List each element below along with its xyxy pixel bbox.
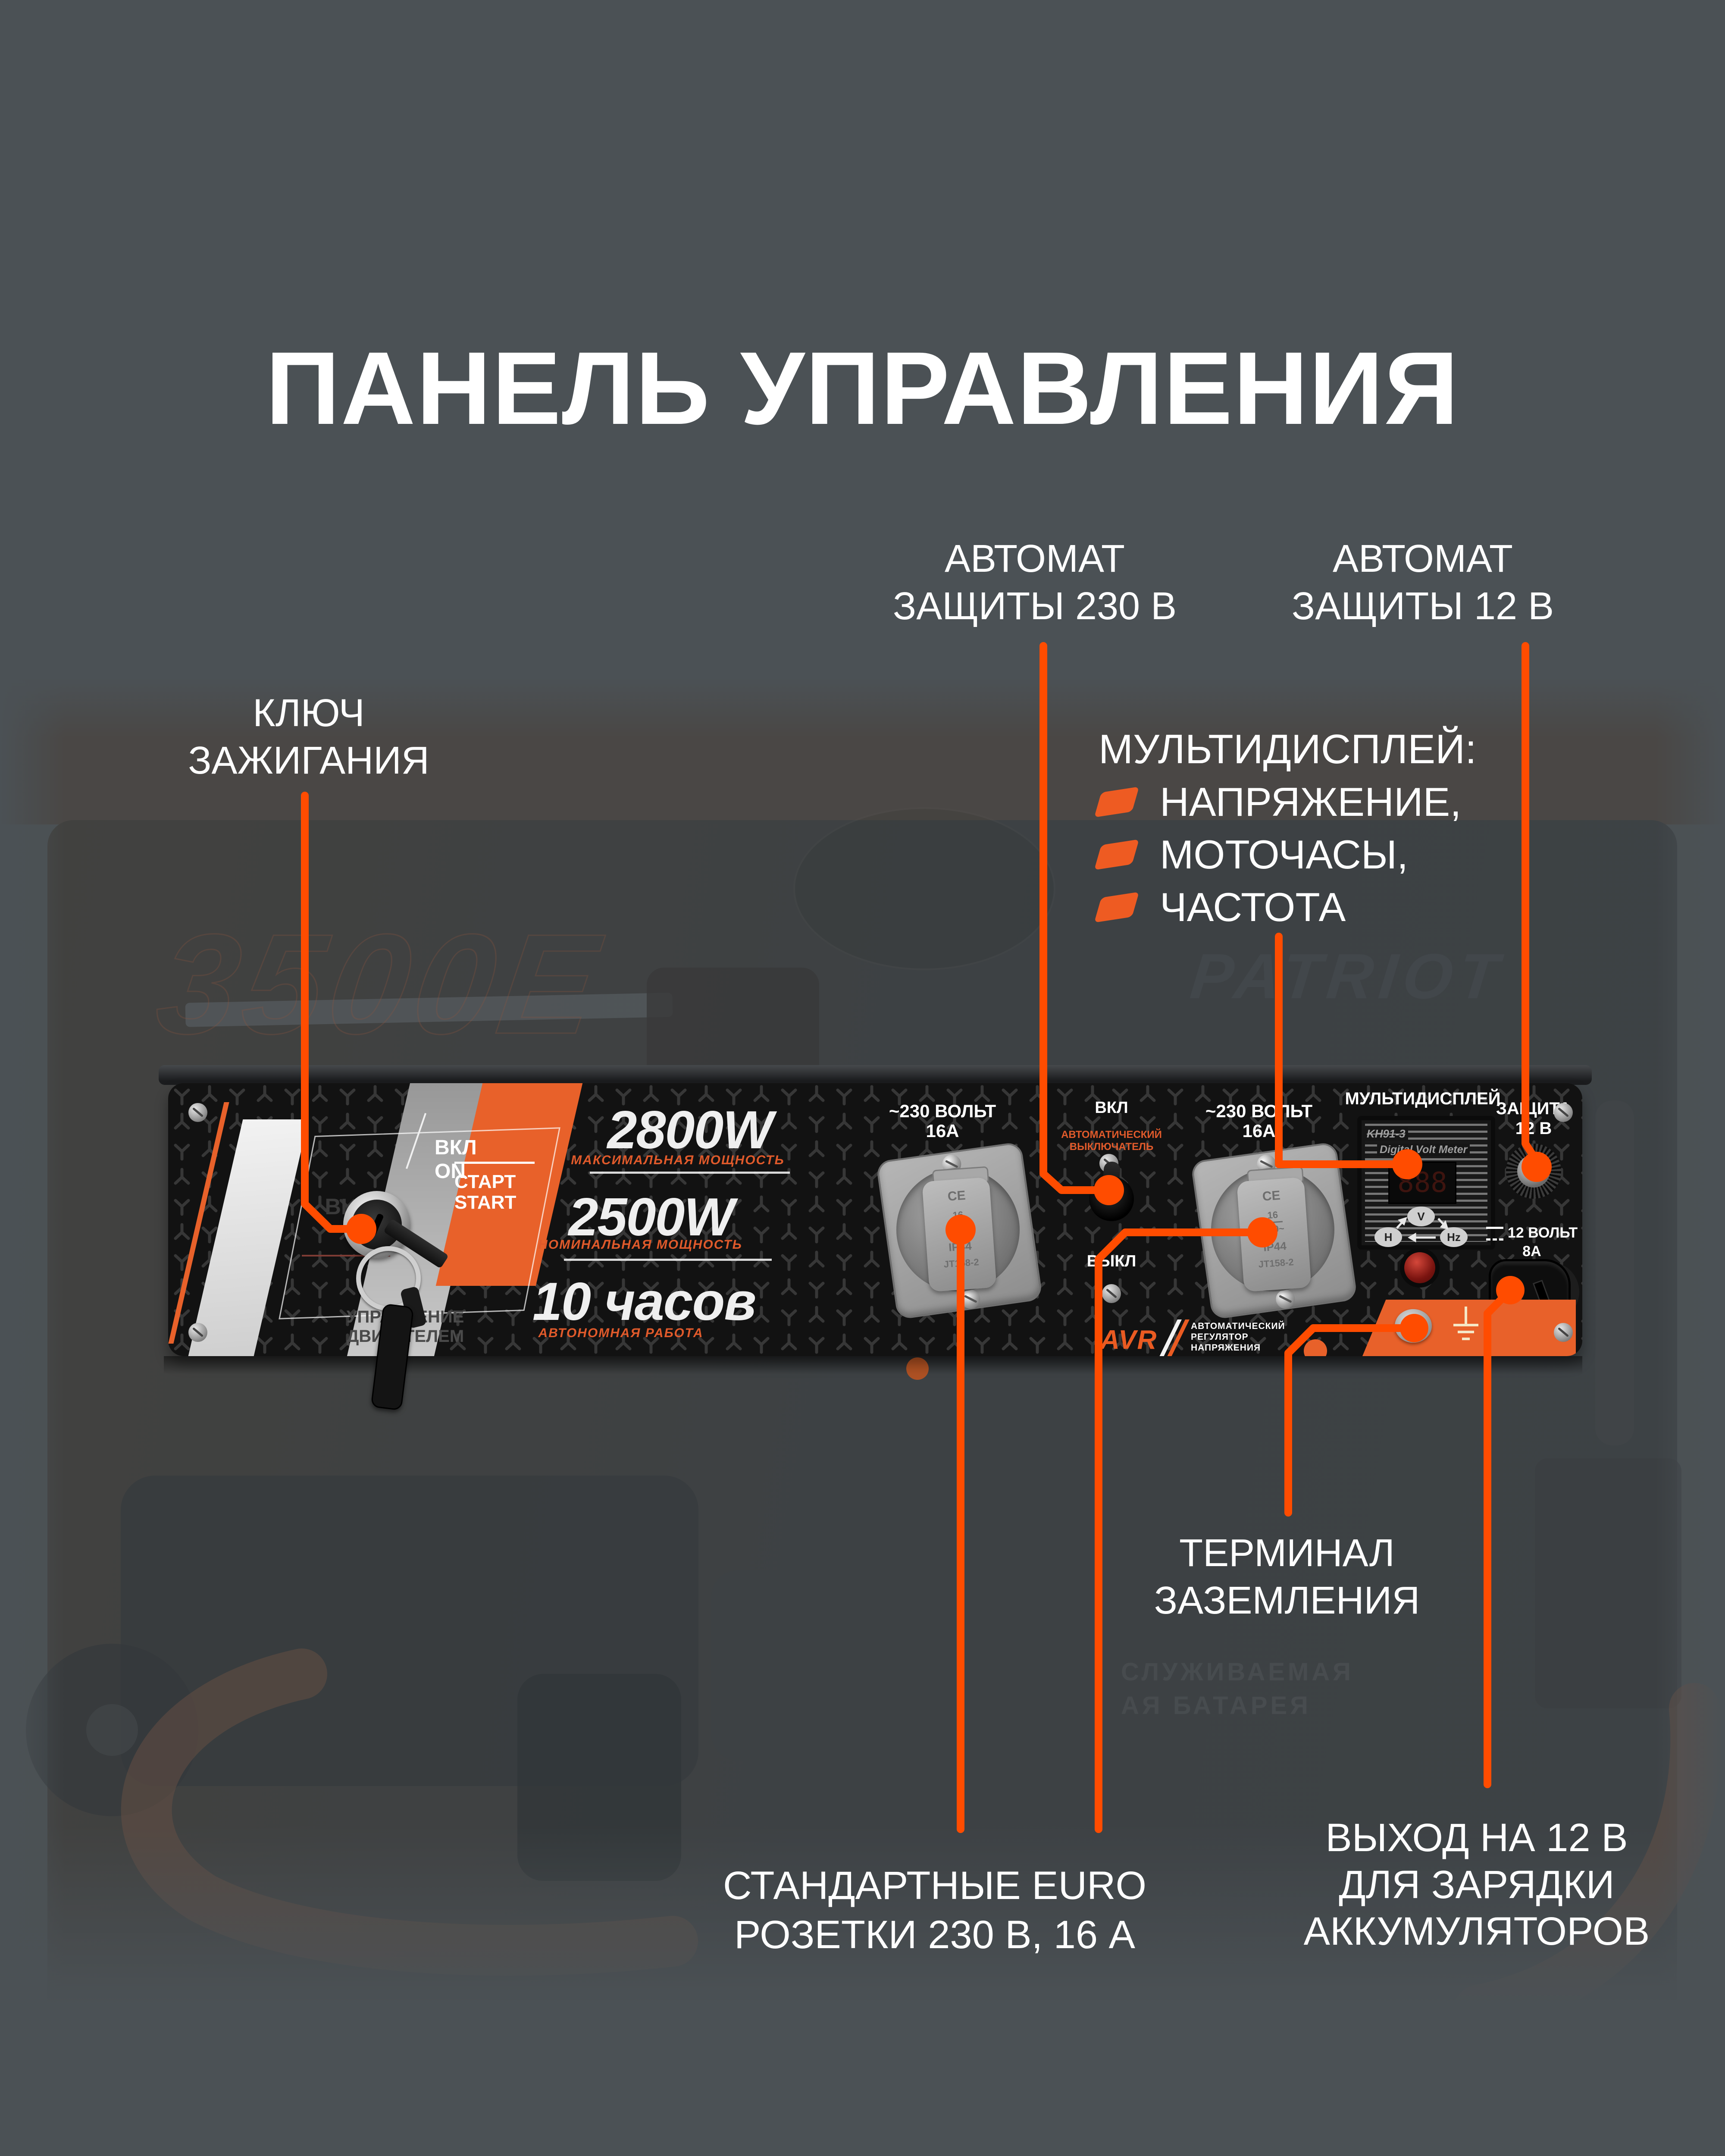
callout-breaker-12v: АВТОМАТ ЗАЩИТЫ 12 В (1143, 536, 1703, 630)
panel-bezel (159, 1065, 1592, 1085)
switch-off-label: ВЫКЛ (1047, 1252, 1176, 1271)
screw-icon (188, 1323, 207, 1342)
screw-icon (1102, 1284, 1121, 1303)
max-power-label: МАКСИМАЛЬНАЯ МОЩНОСТЬ (548, 1153, 807, 1168)
runtime-label: АВТОНОМНАЯ РАБОТА (492, 1326, 750, 1341)
socket-cover-flap: CE 16 250~ IP44 JT158-2 (922, 1177, 996, 1292)
max-power-value: 2800W (582, 1100, 798, 1161)
dc-breaker-button (1506, 1144, 1561, 1199)
screw-icon (1554, 1323, 1573, 1342)
control-panel-infographic: 3500E PATRIOT СЛУЖИВАЕМАЯ АЯ БАТАРЕЯ ПАН… (0, 0, 1725, 2156)
screw-icon (1554, 1103, 1573, 1122)
callout-euro-sockets: СТАНДАРТНЫЕ EURO РОЗЕТКИ 230 В, 16 А (633, 1861, 1237, 1959)
key-position-start: СТАРТ START (454, 1172, 516, 1213)
euro-socket-left: CE 16 250~ IP44 JT158-2 (886, 1151, 1033, 1310)
socket-230v-label-right: ~230 ВОЛЬТ 16А (1173, 1101, 1345, 1141)
callout-output-12v: ВЫХОД НА 12 В ДЛЯ ЗАРЯДКИ АККУМУЛЯТОРОВ (1240, 1814, 1714, 1955)
hex-bullet-icon (1094, 892, 1139, 922)
orange-deco-dot (906, 1357, 929, 1380)
screw-icon (960, 1288, 982, 1310)
callout-ground-terminal: ТЕРМИНАЛ ЗАЗЕМЛЕНИЯ (1071, 1530, 1503, 1625)
hex-bullet-icon (1094, 787, 1139, 817)
hex-bullet-icon (1094, 839, 1139, 870)
screw-icon (1275, 1288, 1296, 1310)
ground-icon (1451, 1307, 1481, 1350)
avr-subtitle: АВТОМАТИЧЕСКИЙ РЕГУЛЯТОР НАПРЯЖЕНИЯ (1191, 1321, 1285, 1353)
start-overline (454, 1162, 535, 1164)
multidisplay-item: НАПРЯЖЕНИЕ, (1099, 781, 1477, 823)
multidisplay-item: ЧАСТОТА (1099, 887, 1477, 928)
page-title: ПАНЕЛЬ УПРАВЛЕНИЯ (0, 329, 1725, 448)
switch-on-label: ВКЛ (1047, 1099, 1176, 1117)
pilot-lamp (1400, 1248, 1440, 1288)
multidisplay-item: МОТОЧАСЫ, (1099, 834, 1477, 875)
socket-230v-label-left: ~230 ВОЛЬТ 16А (856, 1101, 1029, 1141)
rated-power-label: НОМИНАЛЬНАЯ МОЩНОСТЬ (511, 1238, 770, 1252)
avr-label: AVR (1100, 1325, 1157, 1355)
multidisplay-heading: МУЛЬТИДИСПЛЕЙ: (1099, 729, 1477, 770)
screw-icon (188, 1103, 207, 1122)
runtime-value: 10 часов (532, 1271, 748, 1332)
callout-ignition-key: КЛЮЧ ЗАЖИГАНИЯ (93, 690, 524, 785)
euro-socket-right: CE 16 250~ IP44 JT158-2 (1201, 1151, 1347, 1310)
outlet-12v-label: 12 ВОЛЬТ 8А (1467, 1224, 1582, 1260)
breaker-toggle (1089, 1176, 1134, 1221)
dc-icon (1486, 1227, 1503, 1241)
ground-terminal-bolt (1395, 1309, 1432, 1343)
callout-multidisplay: МУЛЬТИДИСПЛЕЙ: НАПРЯЖЕНИЕ, МОТОЧАСЫ, ЧАС… (1099, 729, 1477, 928)
auto-breaker-label: АВТОМАТИЧЕСКИЙ ВЫКЛЮЧАТЕЛЬ (1038, 1129, 1185, 1153)
socket-cover-flap: CE 16 250~ IP44 JT158-2 (1237, 1177, 1311, 1292)
